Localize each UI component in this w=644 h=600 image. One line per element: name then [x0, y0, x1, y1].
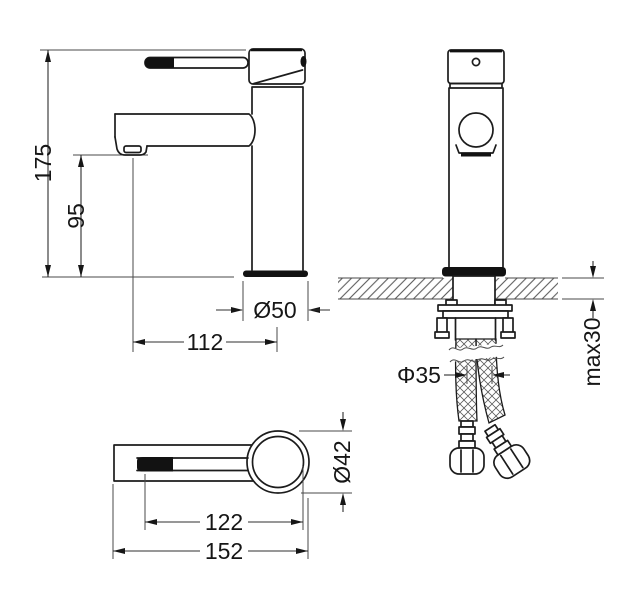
faucet-technical-drawing: 175 95 Ø50 112 [0, 0, 644, 600]
side-spout [115, 114, 255, 146]
hose-fitting-right [476, 419, 533, 482]
dim-overall-height: 175 [30, 50, 56, 277]
mounting-stud-right [503, 318, 513, 333]
dim-label-122: 122 [205, 509, 243, 535]
front-view: Φ35 max30 [338, 50, 605, 482]
front-head [448, 50, 504, 84]
countertop [338, 278, 558, 299]
dim-max-thickness: max30 [562, 261, 605, 387]
side-view: 175 95 Ø50 112 [30, 49, 330, 355]
dim-label-o42: Ø42 [329, 440, 355, 483]
hose-fitting-left [450, 421, 484, 474]
mounting-washer [438, 305, 512, 311]
side-head [249, 49, 305, 84]
top-lever-grip [137, 457, 173, 472]
dim-label-max30: max30 [579, 317, 605, 386]
top-body-outer-circle [247, 431, 309, 493]
side-faucet-body [115, 49, 308, 277]
threaded-shank [453, 276, 495, 307]
dim-label-o50: Ø50 [253, 297, 296, 323]
dim-label-152: 152 [205, 538, 243, 564]
dim-label-175: 175 [30, 144, 56, 182]
top-handle-outline [114, 445, 253, 481]
dim-spout-height: 95 [63, 155, 89, 277]
dim-label-112: 112 [187, 329, 224, 355]
supply-hoses [449, 339, 533, 482]
mounting-stud-left [437, 318, 447, 333]
side-handle-grip [145, 58, 174, 69]
front-faucet-body [442, 50, 506, 277]
dim-base-diameter: Ø50 [216, 297, 330, 323]
top-faucet-outline [114, 431, 309, 493]
front-neck-ring [450, 84, 502, 89]
dim-label-phi35: Φ35 [397, 362, 441, 388]
drawing-page: 175 95 Ø50 112 [0, 0, 644, 600]
front-set-screw [472, 58, 479, 65]
top-view: Ø42 122 152 [113, 412, 355, 564]
side-pivot-screw [301, 56, 307, 67]
dim-label-95: 95 [63, 203, 89, 229]
side-column [252, 87, 303, 270]
front-spout-circle [459, 113, 493, 147]
dim-spout-reach: 112 [133, 329, 277, 355]
front-base-flange [442, 267, 506, 277]
side-head-chamfer [254, 70, 303, 84]
side-aerator-insert [124, 146, 141, 153]
side-base-plate [243, 271, 308, 278]
mounting-nut [443, 311, 508, 318]
front-aerator-screen [461, 153, 491, 157]
